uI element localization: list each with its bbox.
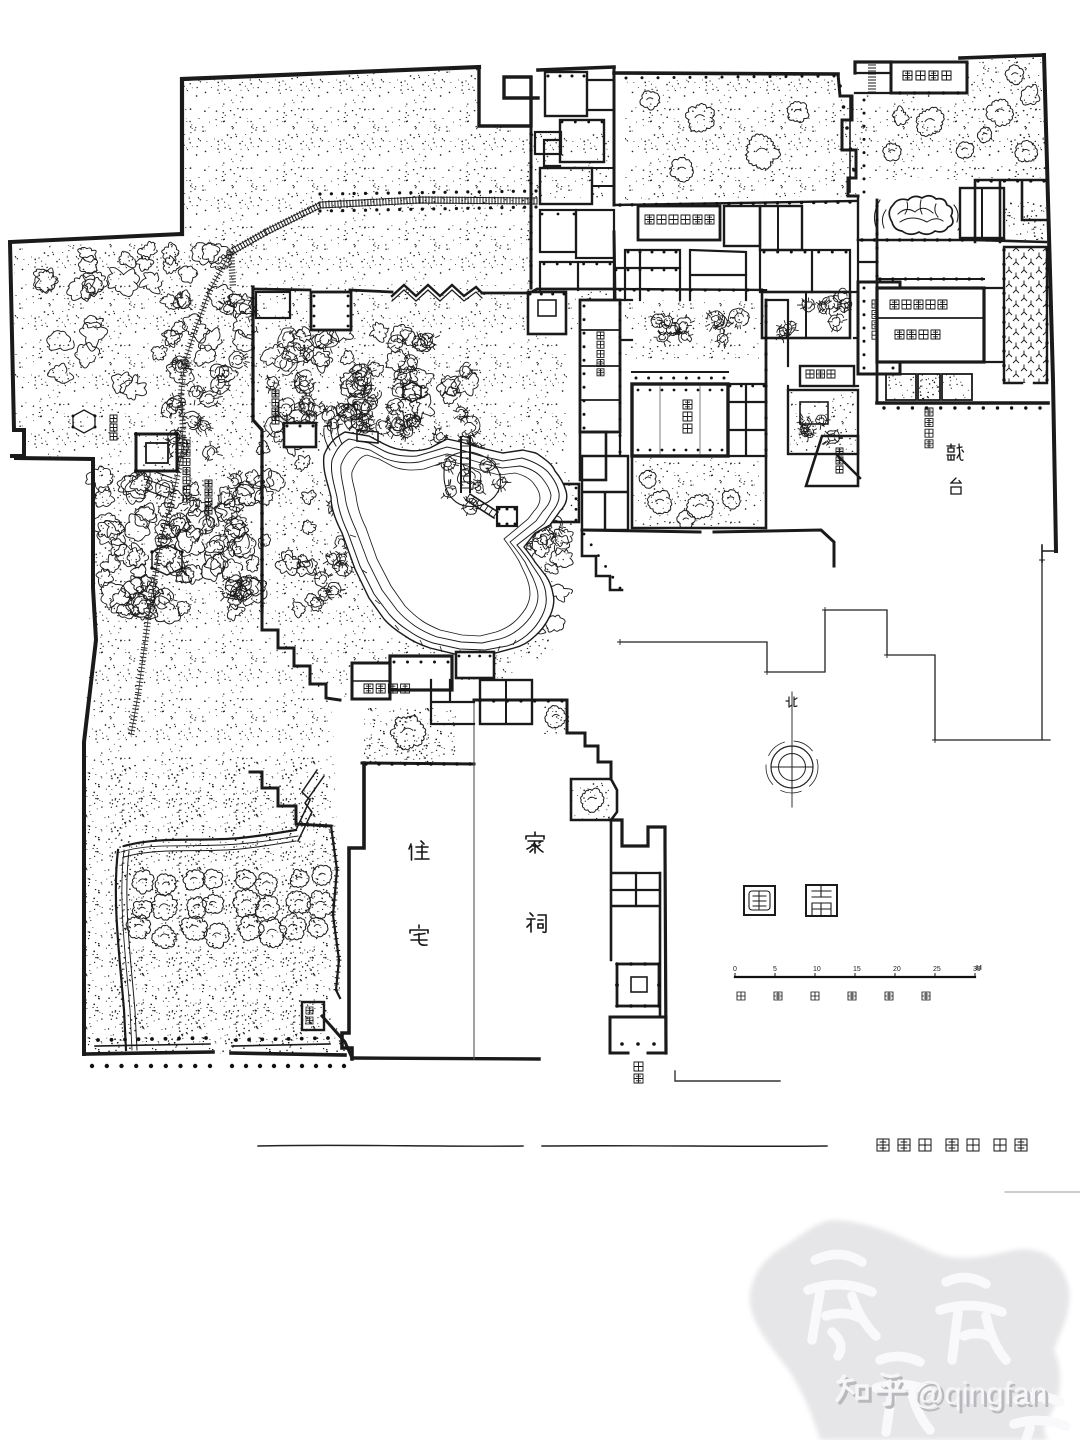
svg-text:10: 10 — [813, 966, 821, 973]
svg-text:5: 5 — [773, 966, 777, 973]
svg-text:20: 20 — [893, 966, 901, 973]
svg-text:M: M — [976, 965, 982, 972]
svg-text:15: 15 — [853, 966, 861, 973]
svg-text:0: 0 — [733, 966, 737, 973]
svg-text:25: 25 — [933, 966, 941, 973]
svg-text:@qingfan: @qingfan — [912, 1375, 1047, 1411]
